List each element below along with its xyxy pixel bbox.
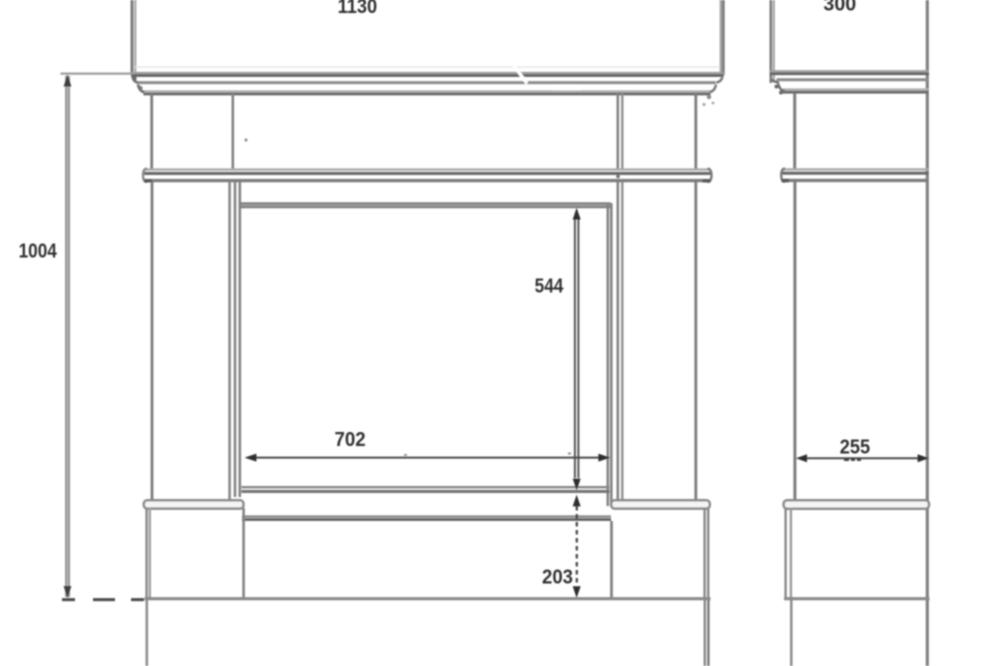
svg-text:203: 203 bbox=[542, 566, 573, 588]
svg-text:255: 255 bbox=[840, 437, 870, 459]
svg-text:1130: 1130 bbox=[338, 0, 378, 18]
svg-text:702: 702 bbox=[335, 429, 366, 451]
svg-text:1004: 1004 bbox=[19, 241, 58, 263]
svg-text:544: 544 bbox=[535, 276, 565, 298]
svg-text:300: 300 bbox=[823, 0, 856, 16]
